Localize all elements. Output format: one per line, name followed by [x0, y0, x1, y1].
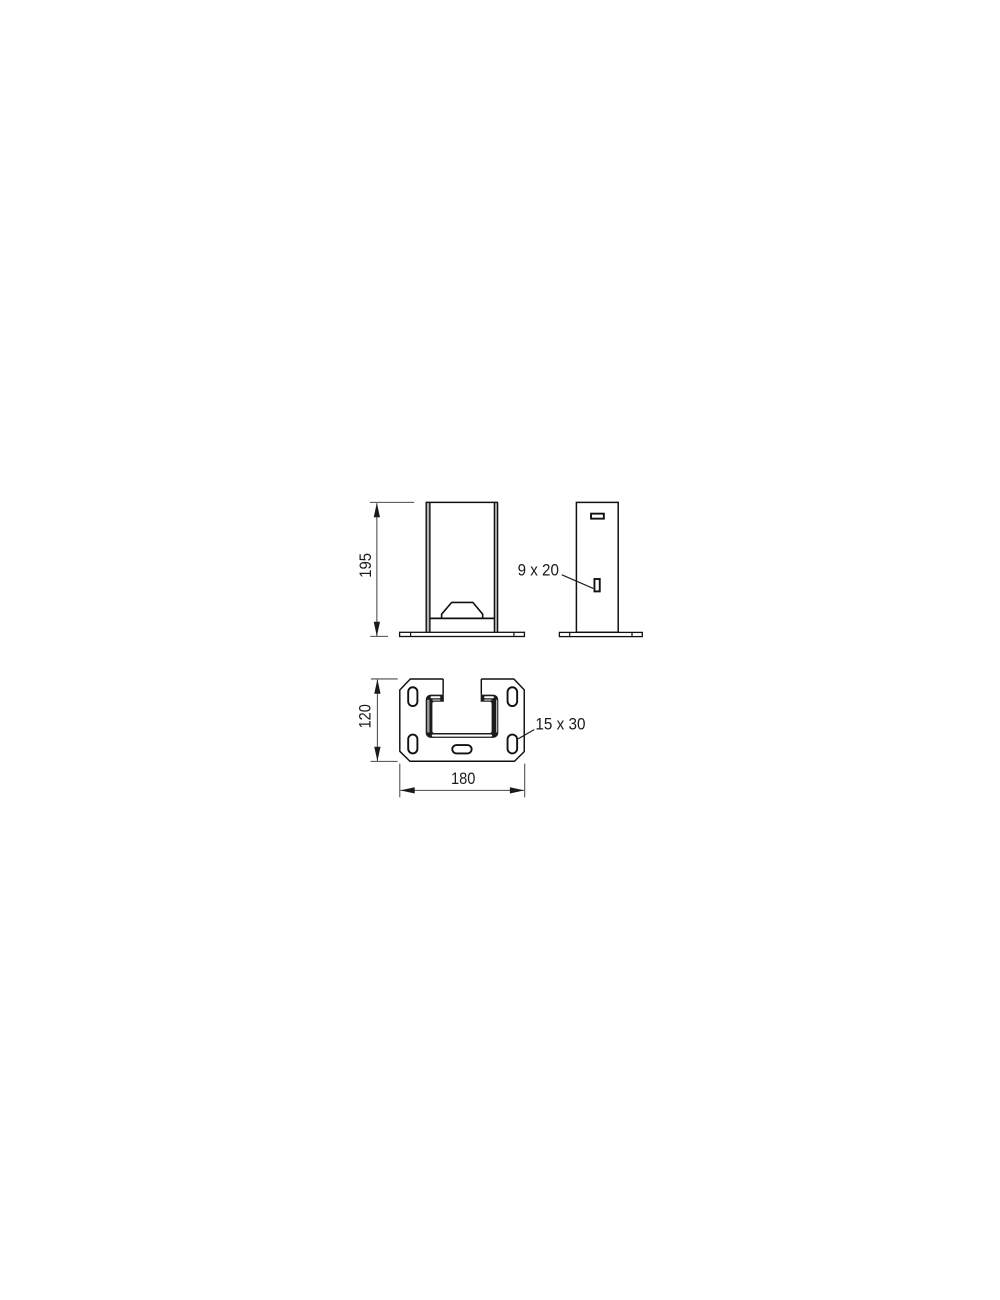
svg-text:9 x 20: 9 x 20	[518, 560, 559, 579]
svg-text:120: 120	[356, 704, 375, 728]
svg-text:180: 180	[451, 769, 475, 788]
svg-text:15 x 30: 15 x 30	[535, 714, 585, 733]
svg-text:195: 195	[356, 553, 375, 578]
